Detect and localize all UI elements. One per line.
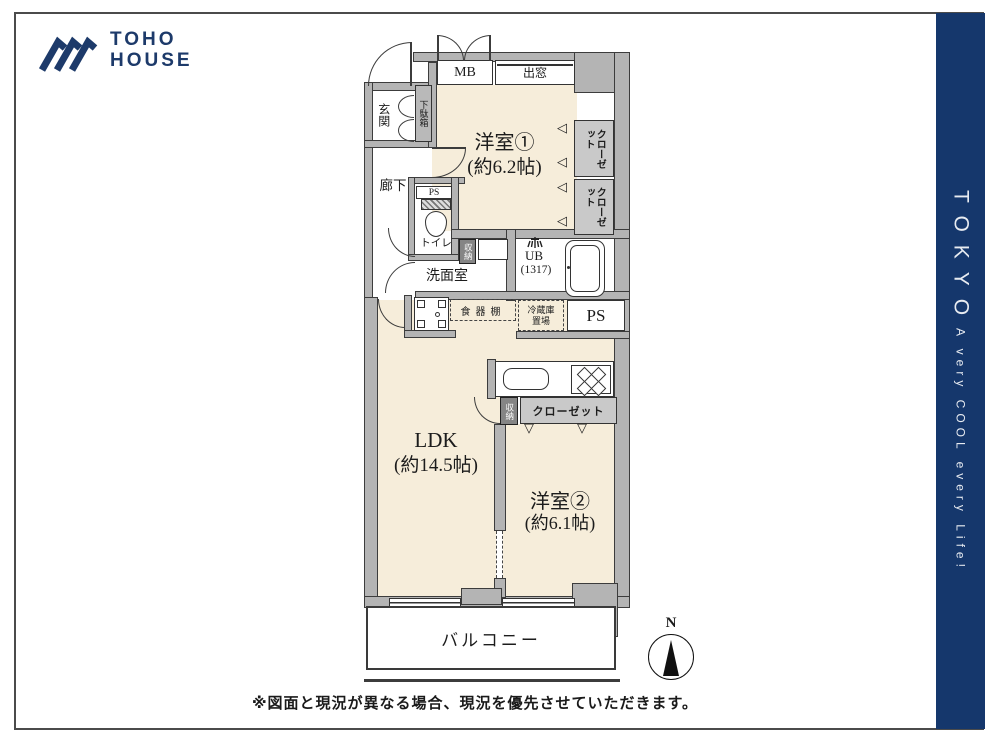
entrance-label: 玄関	[374, 94, 392, 136]
stove-icon	[571, 365, 611, 394]
bathtub-inner	[570, 245, 600, 292]
western2-label: 洋室②	[506, 487, 614, 511]
cupboard-label: 食器棚	[461, 303, 506, 318]
balcony: バルコニー	[366, 606, 616, 670]
ps-small-label: PS	[429, 188, 440, 198]
storage-box: 収納	[459, 239, 476, 264]
washer-drain-icon	[435, 312, 440, 317]
folding-door-icon: ◁	[557, 122, 567, 135]
pipe-space-large: PS	[567, 300, 625, 331]
banner-tagline: A very COOL every Life!	[954, 328, 968, 572]
washroom-label: 洗面室	[418, 266, 476, 284]
entrance-door-leaf	[410, 42, 412, 86]
toho-house-logo-icon	[36, 26, 100, 74]
banner-city-wrap: TOKYO	[936, 190, 985, 328]
brand-line1: TOHO	[110, 29, 193, 50]
fridge-label: 冷蔵庫置場	[526, 305, 556, 327]
floorplan-page: TOHO HOUSE TOKYO A very COOL every Life!…	[0, 0, 1000, 750]
closet-1-label: クローゼット	[583, 129, 605, 169]
meter-box-label: MB	[454, 65, 476, 81]
bay-window-glass-line	[497, 64, 573, 66]
closet-2-label: クローゼット	[583, 187, 605, 227]
toilet-label: トイレ	[417, 236, 455, 248]
storage-label: 収納	[463, 243, 473, 260]
wall	[404, 330, 456, 338]
cupboard-space: 食器棚	[450, 299, 516, 321]
compass-needle	[663, 640, 679, 676]
wall	[516, 331, 630, 339]
burner-icon	[590, 380, 606, 396]
wall	[408, 254, 459, 261]
western2-size: (約6.1帖)	[506, 511, 614, 533]
compass-icon	[648, 634, 694, 680]
disclaimer-text: ※図面と現況が異なる場合、現況を優先させていただきます。	[14, 692, 936, 713]
washer-pan	[414, 297, 449, 331]
banner-tagline-wrap: A very COOL every Life!	[936, 328, 985, 572]
wall	[494, 424, 506, 531]
mb-door-leaf	[489, 35, 491, 61]
storage-box: 収納	[500, 397, 518, 425]
folding-door-icon: ▽	[524, 422, 534, 435]
kitchen-sink	[503, 368, 549, 390]
vanity	[478, 239, 508, 260]
banner-city: TOKYO	[949, 190, 973, 328]
toilet-tank	[421, 199, 451, 210]
washer-pan-corner	[438, 320, 446, 328]
meter-box: MB	[437, 60, 493, 85]
washer-pan-corner	[417, 320, 425, 328]
ldk-label: LDK	[378, 428, 494, 452]
compass-north-label: N	[657, 614, 685, 632]
corridor-label: 廊下	[375, 176, 411, 192]
bath-label: UB	[520, 249, 548, 263]
pipe-space-small: PS	[416, 186, 452, 199]
fridge-space: 冷蔵庫置場	[518, 300, 564, 331]
brand-logo: TOHO HOUSE	[36, 26, 193, 74]
western1-size: (約6.2帖)	[432, 153, 577, 177]
shoe-cabinet: 下駄箱	[415, 85, 432, 142]
brand-line2: HOUSE	[110, 50, 193, 71]
ldk-size: (約14.5帖)	[378, 452, 494, 474]
western1-label: 洋室①	[432, 128, 577, 152]
brand-name: TOHO HOUSE	[110, 29, 193, 72]
wall	[451, 177, 459, 261]
bath-size: (1317)	[510, 263, 562, 276]
folding-door-icon: ◁	[557, 181, 567, 194]
wall	[364, 82, 373, 300]
folding-door-icon: ▽	[577, 422, 587, 435]
wall	[364, 297, 378, 608]
bathtub-faucet-dot	[567, 266, 570, 269]
mb-door-leaf	[437, 35, 439, 61]
ps-large-label: PS	[587, 306, 606, 326]
sliding-door	[496, 531, 503, 578]
balcony-label: バルコニー	[441, 626, 541, 651]
shoe-cabinet-label: 下駄箱	[418, 100, 428, 127]
bay-window-label: 出窓	[523, 64, 547, 81]
folding-door-icon: ◁	[557, 156, 567, 169]
washer-pan-corner	[438, 300, 446, 308]
wall	[461, 588, 502, 605]
balcony-outer-line	[364, 679, 620, 682]
closet-3: クローゼット	[520, 397, 617, 424]
closet-2: クローゼット	[574, 179, 614, 235]
folding-door-icon: ◁	[557, 215, 567, 228]
closet-3-label: クローゼット	[533, 403, 605, 419]
washer-pan-corner	[417, 300, 425, 308]
storage-label: 収納	[504, 403, 514, 420]
closet-1: クローゼット	[574, 120, 614, 177]
